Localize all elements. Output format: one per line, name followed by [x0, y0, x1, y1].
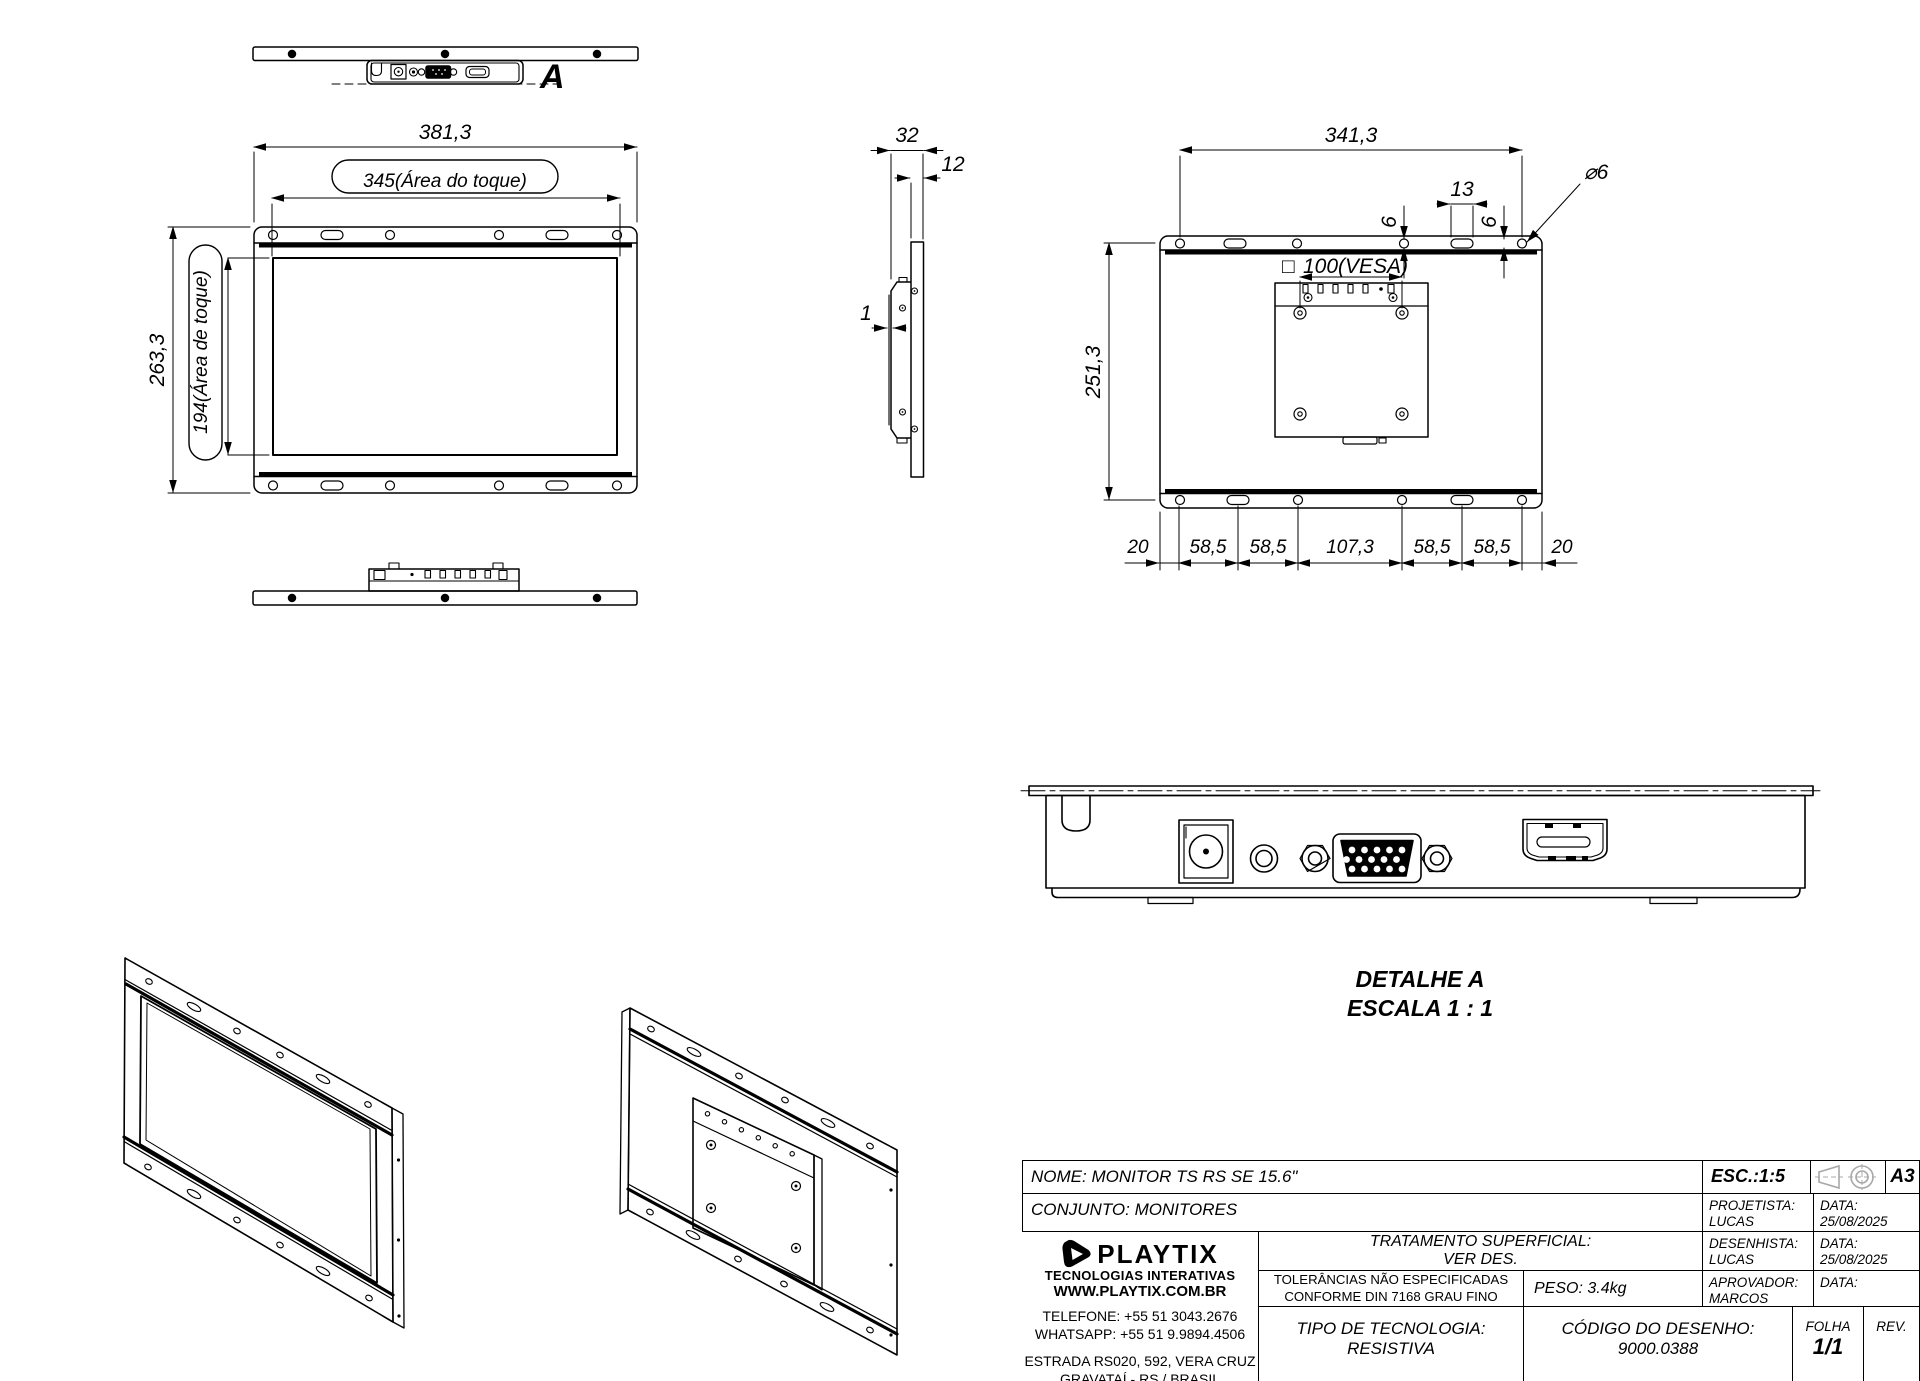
mount-hook — [372, 63, 382, 76]
dim-rear-height: 251,3 — [1082, 345, 1105, 399]
data3-cell: DATA: — [1813, 1270, 1920, 1307]
title-block-escala: ESC.:1:5 — [1702, 1160, 1811, 1194]
projetista-label: PROJETISTA: — [1709, 1198, 1807, 1214]
aprovador-label: APROVADOR: — [1709, 1275, 1807, 1291]
dim-chain-5: 58,5 — [1474, 537, 1511, 558]
company-endereco-1: ESTRADA RS020, 592, VERA CRUZ — [1024, 1353, 1255, 1371]
screen-area — [140, 996, 377, 1283]
detail-a-view: DETALHE A ESCALA 1 : 1 — [1021, 786, 1820, 1021]
dim-vesa: 100(VESA) — [1303, 255, 1408, 278]
bottom-view — [253, 563, 637, 605]
dim-touch-width: 345(Área do toque) — [363, 171, 527, 192]
vga-connector-icon — [426, 66, 451, 78]
folha-cell: FOLHA 1/1 — [1792, 1306, 1864, 1381]
desenhista-label: DESENHISTA: — [1709, 1236, 1807, 1252]
dim-chain-4: 58,5 — [1414, 537, 1451, 558]
dim-chain-3: 107,3 — [1326, 537, 1374, 558]
tolerancias-cell: TOLERÂNCIAS NÃO ESPECIFICADAS CONFORME D… — [1258, 1270, 1524, 1307]
dim-touch-height: 194(Área de toque) — [191, 270, 212, 434]
data1-cell: DATA: 25/08/2025 — [1813, 1193, 1920, 1232]
rear-view: 341,3 13 6 6 ⌀6 □ 100(VESA) 251,3 20 58,… — [1082, 124, 1609, 570]
third-angle-projection-icon — [1813, 1163, 1883, 1191]
paper-size-badge: A3 — [1885, 1160, 1920, 1194]
detail-a-callout: A — [539, 58, 565, 96]
data2-label: DATA: — [1820, 1236, 1913, 1252]
codigo-line1: CÓDIGO DO DESENHO: — [1562, 1319, 1755, 1339]
dim-front-width: 381,3 — [419, 121, 472, 144]
dim-glass: 1 — [860, 302, 872, 325]
dim-edge-offset-b: 6 — [1478, 216, 1501, 228]
tolerancias-line2: CONFORME DIN 7168 GRAU FINO — [1284, 1289, 1497, 1306]
detail-scale: ESCALA 1 : 1 — [1347, 995, 1493, 1021]
company-endereco-2: GRAVATAÍ - RS / BRASIL — [1024, 1371, 1255, 1381]
side-view: 32 12 1 — [860, 124, 965, 477]
peso-cell: PESO: 3.4kg — [1523, 1270, 1703, 1307]
detail-title: DETALHE A — [1355, 966, 1484, 992]
drawing-sheet: A — [0, 0, 1920, 1381]
folha-value: 1/1 — [1813, 1334, 1844, 1360]
isometric-front-view — [124, 958, 404, 1328]
data2-cell: DATA: 25/08/2025 — [1813, 1231, 1920, 1271]
projetista-cell: PROJETISTA: LUCAS EVALDT — [1702, 1193, 1814, 1232]
data3-label: DATA: — [1820, 1275, 1913, 1291]
company-telefone: TELEFONE: +55 51 3043.2676 — [1035, 1308, 1245, 1326]
rev-cell: REV. — [1863, 1306, 1920, 1381]
aprovador-value: MARCOS — [1709, 1291, 1807, 1307]
vga-silhouette — [1343, 437, 1377, 444]
tipo-line2: RESISTIVA — [1347, 1339, 1435, 1359]
audio-jack-icon — [1251, 845, 1278, 872]
dim-hole-diameter: ⌀6 — [1584, 161, 1609, 184]
data2-value: 25/08/2025 — [1820, 1252, 1913, 1268]
tolerancias-line1: TOLERÂNCIAS NÃO ESPECIFICADAS — [1274, 1272, 1508, 1289]
tipo-line1: TIPO DE TECNOLOGIA: — [1297, 1319, 1486, 1339]
tipo-tecnologia-cell: TIPO DE TECNOLOGIA: RESISTIVA — [1258, 1306, 1524, 1381]
projection-symbol-cell — [1810, 1160, 1886, 1194]
tratamento-line1: TRATAMENTO SUPERFICIAL: — [1370, 1233, 1591, 1251]
company-whatsapp: WHATSAPP: +55 51 9.9894.4506 — [1035, 1326, 1245, 1344]
data1-value: 25/08/2025 — [1820, 1214, 1913, 1230]
aprovador-cell: APROVADOR: MARCOS — [1702, 1270, 1814, 1307]
desenhista-cell: DESENHISTA: LUCAS EVALDT — [1702, 1231, 1814, 1271]
dim-chain-6: 20 — [1550, 537, 1573, 558]
dim-depth: 32 — [895, 124, 919, 147]
vesa-plate — [1275, 283, 1428, 444]
vesa-square-symbol: □ — [1282, 255, 1295, 278]
dim-chain-0: 20 — [1126, 537, 1149, 558]
brand-tagline: TECNOLOGIAS INTERATIVAS — [1045, 1268, 1236, 1283]
front-view: 381,3 345(Área do toque) 263,3 194(Área … — [146, 121, 637, 493]
tratamento-line2: VER DES. — [1443, 1251, 1518, 1269]
isometric-rear-view — [620, 1008, 897, 1355]
codigo-desenho-cell: CÓDIGO DO DESENHO: 9000.0388 — [1523, 1306, 1793, 1381]
power-jack-icon — [1179, 820, 1233, 883]
dim-chain-2: 58,5 — [1250, 537, 1287, 558]
dim-chain-1: 58,5 — [1190, 537, 1227, 558]
desenhista-value: LUCAS EVALDT — [1709, 1252, 1807, 1271]
brand-name: PLAYTIX — [1097, 1239, 1218, 1270]
dim-front-height: 263,3 — [146, 333, 169, 387]
title-block-conjunto: CONJUNTO: MONITORES — [1022, 1193, 1703, 1232]
dim-slot-width: 13 — [1450, 178, 1474, 201]
data1-label: DATA: — [1820, 1198, 1913, 1214]
folha-label: FOLHA — [1805, 1319, 1850, 1334]
projetista-value: LUCAS EVALDT — [1709, 1214, 1807, 1232]
mount-hook — [1062, 796, 1090, 831]
playtix-logo-icon — [1061, 1238, 1093, 1270]
dim-front-depth: 12 — [941, 153, 965, 176]
screen-area — [273, 258, 617, 455]
brand-website: WWW.PLAYTIX.COM.BR — [1054, 1283, 1227, 1300]
dim-mount-span: 341,3 — [1325, 124, 1378, 147]
vga-connector-icon — [1300, 834, 1452, 883]
company-logo-cell: PLAYTIX TECNOLOGIAS INTERATIVAS WWW.PLAY… — [1022, 1232, 1259, 1381]
codigo-line2: 9000.0388 — [1618, 1339, 1698, 1359]
dim-edge-offset-a: 6 — [1378, 216, 1401, 228]
hdmi-connector-icon — [1523, 820, 1607, 861]
top-view: A — [253, 47, 638, 96]
tratamento-cell: TRATAMENTO SUPERFICIAL: VER DES. — [1258, 1231, 1703, 1271]
title-block-nome: NOME: MONITOR TS RS SE 15.6" — [1022, 1160, 1703, 1194]
